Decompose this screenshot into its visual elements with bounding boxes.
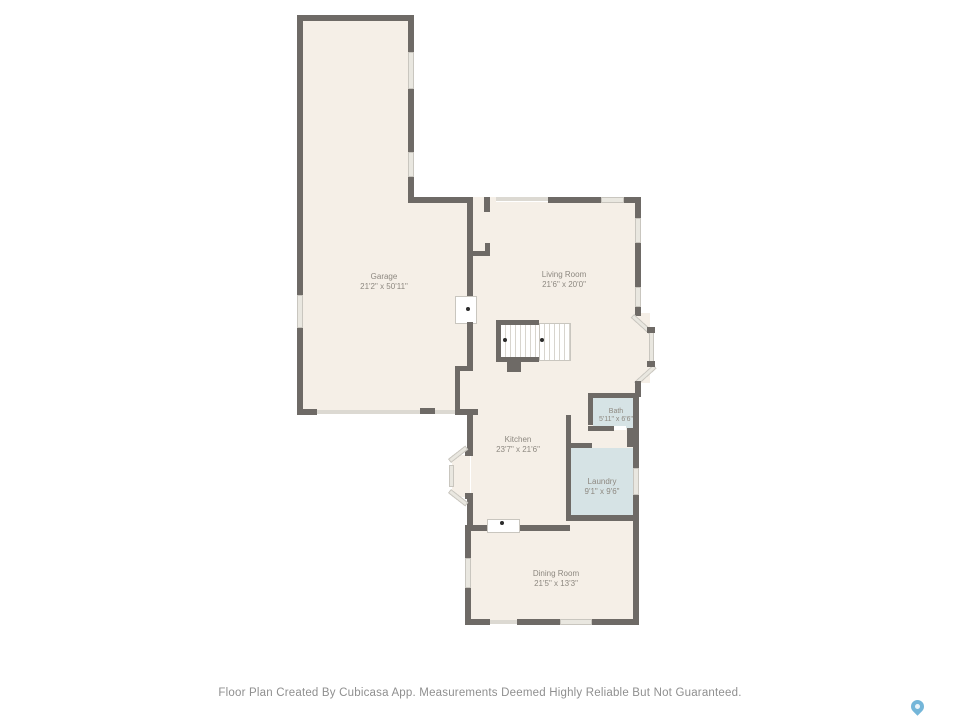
wall [467,197,473,297]
stair-wall [507,361,521,372]
wall [635,307,641,316]
wall [465,588,471,625]
cubicasa-pin-icon [908,697,926,715]
window [408,52,414,89]
door [614,426,626,430]
garage-door [435,410,457,414]
wall [566,443,592,448]
wall [635,243,641,287]
room-name: Dining Room [533,569,579,579]
window [601,197,624,203]
room-name: Kitchen [496,435,540,445]
room-name: Laundry [585,477,620,487]
room-name: Living Room [542,270,586,280]
wall [548,197,601,203]
wall [566,415,571,521]
room-label-kitchen: Kitchen 23'7" x 21'6" [496,435,540,455]
opening [490,620,517,624]
garage-door [317,410,420,414]
stairs-flight [539,323,571,361]
wall [566,515,639,521]
wall [588,426,614,431]
window [635,287,641,307]
room-label-bath: Bath 5'11" x 6'6" [599,408,633,424]
room-dimensions: 21'2" x 50'11" [360,282,408,292]
bay-window [449,465,454,487]
wall [633,520,639,625]
door-hinge [466,307,470,311]
wall [588,393,593,425]
wall [408,197,473,203]
room-name: Bath [599,408,633,416]
wall [647,327,655,333]
room-label-laundry: Laundry 9'1" x 9'6" [585,477,620,497]
stair-wall [496,320,501,362]
wall [420,408,435,414]
window [635,218,641,243]
window [465,558,471,588]
room-dimensions: 9'1" x 9'6" [585,487,620,497]
wall [467,413,473,454]
room-label-living-room: Living Room 21'6" x 20'0" [542,270,586,290]
stair-wall [496,320,539,325]
wall [627,428,639,447]
stair-marker [540,338,544,342]
wall [297,15,414,21]
opening [496,197,548,201]
door-hinge [500,521,504,525]
wall [633,447,639,468]
room-label-garage: Garage 21'2" x 50'11" [360,272,408,292]
window [633,468,639,495]
wall [519,525,570,531]
garage-floor-upper [302,20,410,202]
wall [297,15,303,295]
floor-plan: Garage 21'2" x 50'11" Living Room 21'6" … [0,0,960,720]
doorway-patch [473,197,484,205]
window [408,152,414,177]
wall [297,328,303,415]
wall [467,322,473,370]
wall [465,493,473,499]
wall [408,15,414,52]
wall [517,619,560,625]
wall [647,361,655,367]
wall [588,393,639,398]
door-jamb [485,243,490,256]
room-name: Garage [360,272,408,282]
room-dimensions: 21'5" x 13'3" [533,579,579,589]
wall [297,409,317,415]
room-dimensions: 23'7" x 21'6" [496,445,540,455]
wall [465,528,471,558]
kitchen-bay-floor [452,455,470,497]
room-dimensions: 21'6" x 20'0" [542,280,586,290]
room-label-dining-room: Dining Room 21'5" x 13'3" [533,569,579,589]
room-dimensions: 5'11" x 6'6" [599,416,633,424]
wall [455,366,460,414]
wall [408,89,414,152]
stair-marker [503,338,507,342]
disclaimer-text: Floor Plan Created By Cubicasa App. Meas… [0,687,960,699]
wall [592,619,639,625]
window [297,295,303,328]
wall [633,395,639,430]
door-jamb [484,197,490,212]
window [560,619,592,625]
garage-floor-lower [302,200,472,411]
wall [635,197,641,218]
